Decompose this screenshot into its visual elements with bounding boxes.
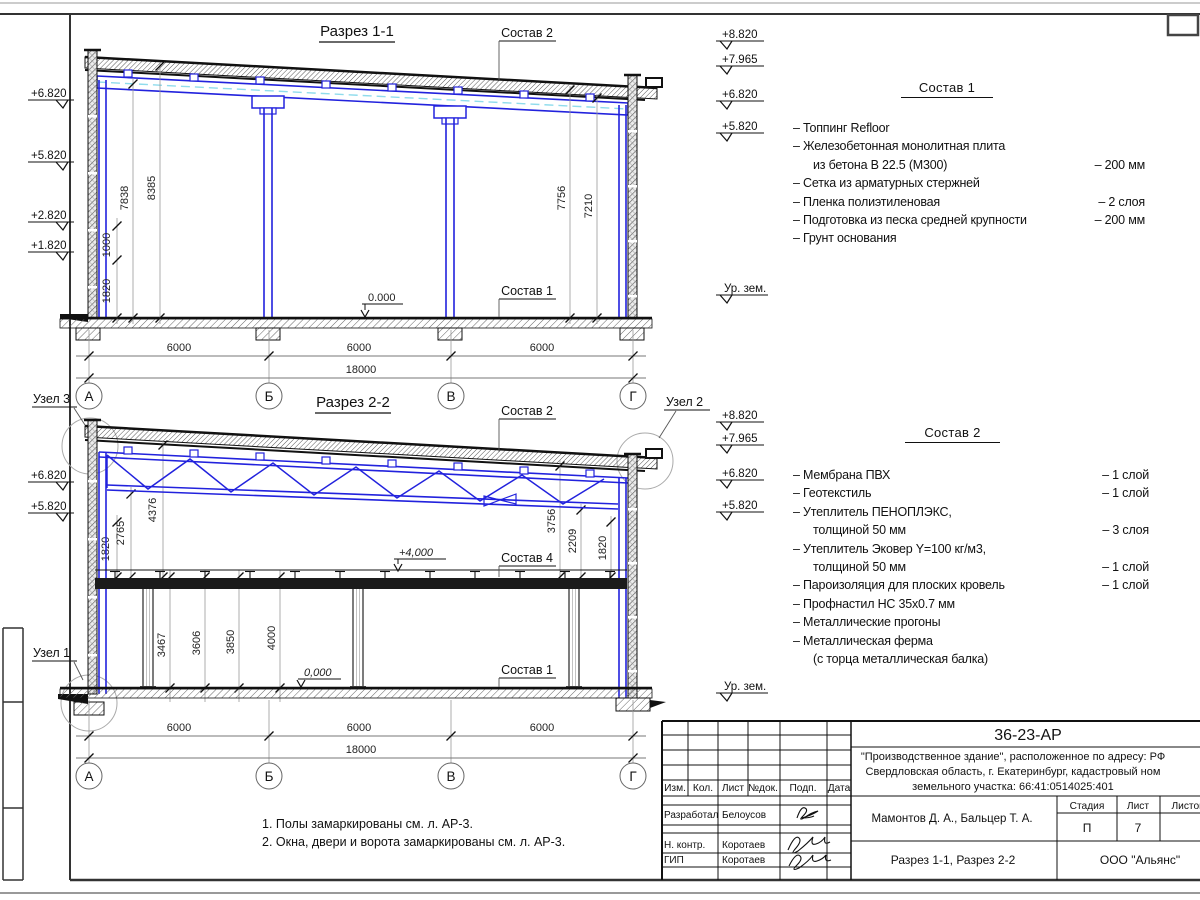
zero-mark-1: 0.000 bbox=[361, 292, 403, 317]
svg-text:+6.820: +6.820 bbox=[722, 468, 758, 480]
svg-text:Белоусов: Белоусов bbox=[722, 810, 766, 821]
svg-text:№док.: №док. bbox=[748, 783, 778, 794]
roof-2 bbox=[85, 426, 662, 471]
change-table-header: Изм. Кол. Лист №док. Подп. Дата bbox=[664, 783, 851, 794]
list-item: из бетона В 22.5 (М300)– 200 мм bbox=[793, 156, 1145, 174]
svg-text:+6.820: +6.820 bbox=[31, 470, 67, 482]
dims-mid-2: 3467 3606 3850 4000 bbox=[156, 570, 285, 702]
svg-text:6000: 6000 bbox=[167, 722, 191, 734]
dim-8385: 8385 bbox=[146, 176, 158, 200]
dims-bottom-2: 6000 6000 6000 18000 bbox=[76, 700, 646, 763]
svg-text:Г: Г bbox=[629, 769, 637, 784]
svg-text:Состав 2: Состав 2 bbox=[501, 404, 553, 418]
svg-text:+1.820: +1.820 bbox=[31, 240, 67, 252]
sostav1-header: Состав 1 bbox=[901, 80, 993, 98]
list-item: – Металлическая ферма bbox=[793, 632, 1149, 650]
dims-bottom-1: 6000 6000 6000 18000 bbox=[76, 330, 646, 383]
list-item: толщиной 50 мм– 3 слоя bbox=[793, 521, 1149, 539]
node-label-3: Узел 3 bbox=[33, 392, 70, 406]
elevations-left-2: +6.820 +5.820 bbox=[28, 470, 74, 521]
svg-text:Состав 4: Состав 4 bbox=[501, 551, 553, 565]
svg-text:6000: 6000 bbox=[167, 342, 191, 354]
svg-text:В: В bbox=[446, 389, 455, 404]
floor-1 bbox=[60, 314, 652, 340]
svg-text:1820: 1820 bbox=[597, 536, 609, 560]
dims-left-2: 1820 2765 4376 bbox=[100, 440, 168, 583]
level-marks-2: +4,000 0,000 bbox=[297, 547, 446, 687]
list-item: – Пароизоляция для плоских кровель– 1 сл… bbox=[793, 576, 1149, 594]
sheet-label: Лист bbox=[1127, 801, 1149, 812]
svg-text:+5.820: +5.820 bbox=[722, 121, 758, 133]
list-item: (с торца металлическая балка) bbox=[793, 650, 1149, 668]
drawing-notes: 1. Полы замаркированы см. л. АР-3. 2. Ок… bbox=[262, 816, 565, 851]
list-item: – Железобетонная монолитная плита bbox=[793, 137, 1145, 155]
svg-text:+7.965: +7.965 bbox=[722, 54, 758, 66]
svg-text:+7.965: +7.965 bbox=[722, 433, 758, 445]
svg-text:6000: 6000 bbox=[347, 722, 371, 734]
svg-text:Коротаев: Коротаев bbox=[722, 855, 765, 866]
svg-text:В: В bbox=[446, 769, 455, 784]
dims-right-2: 3756 2209 1820 bbox=[546, 460, 616, 583]
node-label-1: Узел 1 bbox=[33, 646, 70, 660]
svg-text:Б: Б bbox=[265, 389, 274, 404]
section-1-1: Разрез 1-1 bbox=[28, 23, 768, 409]
svg-text:ГИП: ГИП bbox=[664, 855, 684, 866]
list-item: – Пленка полиэтиленовая– 2 слоя bbox=[793, 193, 1145, 211]
list-item: – Сетка из арматурных стержней bbox=[793, 174, 1145, 192]
elevations-left-1: +6.820 +5.820 +2.820 +1.820 bbox=[28, 88, 74, 260]
svg-text:+5.820: +5.820 bbox=[31, 501, 67, 513]
svg-text:+8.820: +8.820 bbox=[722, 410, 758, 422]
note-line: 1. Полы замаркированы см. л. АР-3. bbox=[262, 816, 565, 834]
list-item: – Подготовка из песка средней крупности–… bbox=[793, 211, 1145, 229]
dim-7838: 7838 bbox=[119, 186, 131, 210]
svg-text:А: А bbox=[84, 389, 93, 404]
svg-text:0.000: 0.000 bbox=[368, 292, 396, 304]
corner-stamp-box bbox=[1168, 15, 1198, 35]
svg-text:Состав 1: Состав 1 bbox=[501, 284, 553, 298]
svg-text:Изм.: Изм. bbox=[664, 783, 686, 794]
title-block: 36-23-АР "Производственное здание", расп… bbox=[662, 721, 1200, 880]
sostav1-list: – Топпинг Refloor – Железобетонная монол… bbox=[793, 119, 1145, 248]
svg-text:Разработал: Разработал bbox=[664, 809, 719, 821]
sostav-labels-2: Состав 2 Состав 4 Состав 1 bbox=[499, 404, 556, 687]
list-item: – Утеплитель Эковер Y=100 кг/м3, bbox=[793, 540, 1149, 558]
svg-text:+5.820: +5.820 bbox=[722, 500, 758, 512]
svg-text:Дата: Дата bbox=[828, 783, 851, 794]
svg-text:4376: 4376 bbox=[147, 498, 159, 522]
doc-code: 36-23-АР bbox=[994, 727, 1062, 744]
list-item: – Утеплитель ПЕНОПЛЭКС, bbox=[793, 503, 1149, 521]
svg-text:+8.820: +8.820 bbox=[722, 29, 758, 41]
svg-text:2765: 2765 bbox=[115, 521, 127, 545]
list-item: – Грунт основания bbox=[793, 229, 1145, 247]
svg-text:0,000: 0,000 bbox=[304, 667, 332, 679]
sostav2-list: – Мембрана ПВХ– 1 слой – Геотекстиль– 1 … bbox=[793, 466, 1149, 668]
stage-value: П bbox=[1083, 821, 1092, 835]
svg-text:Состав 2: Состав 2 bbox=[501, 26, 553, 40]
svg-text:4000: 4000 bbox=[266, 626, 278, 650]
note-line: 2. Окна, двери и ворота замаркированы см… bbox=[262, 834, 565, 852]
svg-text:+4,000: +4,000 bbox=[399, 547, 434, 559]
svg-text:Н. контр.: Н. контр. bbox=[664, 840, 705, 851]
svg-text:2209: 2209 bbox=[567, 529, 579, 553]
dim-1000: 1000 bbox=[101, 233, 113, 257]
list-item: – Геотекстиль– 1 слой bbox=[793, 484, 1149, 502]
svg-text:Состав 1: Состав 1 bbox=[501, 663, 553, 677]
dim-7756: 7756 bbox=[556, 186, 568, 210]
svg-text:А: А bbox=[84, 769, 93, 784]
dim-7210: 7210 bbox=[583, 194, 595, 218]
drawing-title: Разрез 1-1, Разрез 2-2 bbox=[891, 853, 1016, 867]
list-item: – Металлические прогоны bbox=[793, 613, 1149, 631]
sheet-number: 7 bbox=[1135, 821, 1142, 835]
company-name: ООО "Альянс" bbox=[1100, 853, 1180, 867]
svg-text:6000: 6000 bbox=[530, 722, 554, 734]
svg-text:3467: 3467 bbox=[156, 633, 168, 657]
svg-text:Б: Б bbox=[265, 769, 274, 784]
stage-label: Стадия bbox=[1070, 801, 1105, 812]
project-address-1: "Производственное здание", расположенное… bbox=[861, 751, 1165, 763]
svg-text:+6.820: +6.820 bbox=[31, 88, 67, 100]
svg-text:3850: 3850 bbox=[225, 630, 237, 654]
list-item: – Топпинг Refloor bbox=[793, 119, 1145, 137]
elevations-right-1: +8.820 +7.965 +6.820 +5.820 Ур. зем. bbox=[716, 29, 768, 303]
section1-title: Разрез 1-1 bbox=[320, 23, 394, 40]
svg-text:+6.820: +6.820 bbox=[722, 89, 758, 101]
project-address-3: земельного участка: 66:41:0514025:401 bbox=[912, 781, 1114, 793]
sostav-labels-1: Состав 2 Состав 1 bbox=[499, 26, 556, 317]
svg-text:18000: 18000 bbox=[346, 364, 377, 376]
list-item: – Профнастил НС 35х0.7 мм bbox=[793, 595, 1149, 613]
sostav2-header: Состав 2 bbox=[905, 425, 1000, 443]
list-item: – Мембрана ПВХ– 1 слой bbox=[793, 466, 1149, 484]
axes-2: А Б В Г bbox=[76, 763, 646, 789]
svg-text:Коротаев: Коротаев bbox=[722, 840, 765, 851]
signature-rows: Разработал Белоусов Н. контр. Коротаев Г… bbox=[664, 808, 831, 870]
ground-level-label-2: Ур. зем. bbox=[724, 681, 766, 693]
section2-title: Разрез 2-2 bbox=[316, 394, 390, 411]
svg-text:6000: 6000 bbox=[347, 342, 371, 354]
left-margin-table bbox=[3, 628, 23, 880]
svg-text:Подп.: Подп. bbox=[789, 783, 816, 794]
svg-text:Лист: Лист bbox=[722, 783, 744, 794]
svg-text:18000: 18000 bbox=[346, 744, 377, 756]
svg-text:Г: Г bbox=[629, 389, 637, 404]
svg-text:Кол.: Кол. bbox=[693, 783, 713, 794]
svg-text:+5.820: +5.820 bbox=[31, 150, 67, 162]
project-address-2: Свердловская область, г. Екатеринбург, к… bbox=[866, 766, 1161, 778]
svg-text:+2.820: +2.820 bbox=[31, 210, 67, 222]
floor-2 bbox=[58, 688, 666, 715]
authors: Мамонтов Д. А., Бальцер Т. А. bbox=[871, 813, 1032, 825]
columns-1 bbox=[99, 80, 626, 318]
list-item: толщиной 50 мм– 1 слой bbox=[793, 558, 1149, 576]
elevations-right-2: +8.820 +7.965 +6.820 +5.820 Ур. зем. bbox=[716, 410, 768, 701]
node-label-2: Узел 2 bbox=[666, 395, 703, 409]
sheets-label: Листов bbox=[1171, 801, 1200, 812]
svg-text:3606: 3606 bbox=[191, 631, 203, 655]
svg-text:6000: 6000 bbox=[530, 342, 554, 354]
dim-1820: 1820 bbox=[101, 279, 113, 303]
ground-level-label-1: Ур. зем. bbox=[724, 283, 766, 295]
signature-scribbles bbox=[788, 808, 831, 870]
section-2-2: Разрез 2-2 Узел 3 Узел 2 Узел 1 bbox=[28, 392, 768, 789]
svg-text:3756: 3756 bbox=[546, 509, 558, 533]
drawing-sheet: Разрез 1-1 bbox=[0, 0, 1200, 900]
